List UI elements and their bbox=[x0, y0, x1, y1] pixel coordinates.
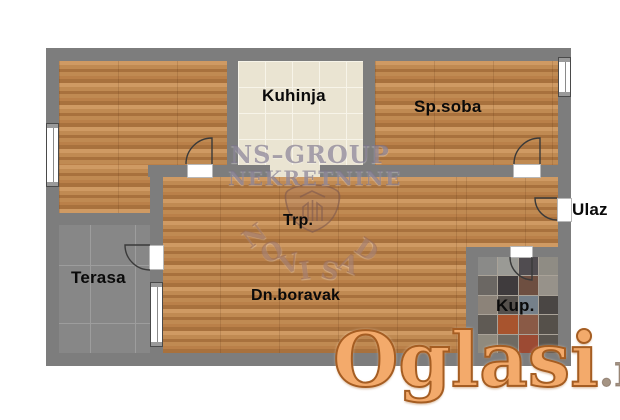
left-room-floor bbox=[59, 61, 227, 165]
bedroom-window bbox=[558, 57, 571, 97]
bathroom-door-threshold bbox=[510, 246, 533, 258]
window-cap bbox=[151, 342, 162, 346]
window-cap bbox=[559, 92, 570, 96]
window-cap bbox=[151, 283, 162, 287]
agency-watermark-name: NS–GROUP bbox=[228, 143, 392, 167]
terrace-right-wall-segment bbox=[150, 165, 163, 245]
bathroom-tile bbox=[478, 257, 497, 275]
window-cap bbox=[47, 182, 58, 186]
window-glass-line bbox=[53, 125, 54, 185]
bathroom-tile bbox=[478, 276, 497, 294]
terrace-right-wall-segment bbox=[150, 347, 163, 366]
terrace-window bbox=[150, 282, 163, 347]
dining-label: Trp. bbox=[283, 212, 313, 230]
terrace-label: Terasa bbox=[71, 268, 126, 288]
bathroom-top-wall-segment bbox=[533, 247, 558, 257]
bathroom-top-wall-segment bbox=[478, 247, 510, 257]
outer-wall-left bbox=[46, 48, 59, 366]
terrace-door-threshold bbox=[149, 245, 164, 270]
window-cap bbox=[559, 58, 570, 62]
portal-watermark: Oglasi.rs bbox=[333, 323, 620, 398]
portal-watermark-name: Oglasi bbox=[333, 316, 599, 404]
bathroom-tile bbox=[539, 257, 558, 275]
agency-watermark: NS–GROUP NEKRETNINE bbox=[228, 143, 392, 188]
bedroom-label: Sp.soba bbox=[414, 97, 482, 117]
terrace-top-wall bbox=[46, 213, 150, 225]
terrace-floor bbox=[59, 225, 150, 353]
entrance-door-threshold bbox=[557, 198, 572, 222]
hallway-floor bbox=[466, 177, 558, 247]
window-cap bbox=[47, 124, 58, 128]
portal-watermark-tld: .rs bbox=[599, 344, 620, 397]
bathroom-tile bbox=[498, 257, 517, 275]
left-room-door-threshold bbox=[187, 164, 213, 178]
entrance-label: Ulaz bbox=[572, 200, 608, 220]
window-glass-line bbox=[157, 284, 158, 345]
bathroom-label: Kup. bbox=[496, 296, 535, 316]
agency-watermark-type: NEKRETNINE bbox=[228, 168, 392, 188]
bathroom-tile bbox=[519, 257, 538, 275]
bedroom-bottom-wall-segment bbox=[541, 165, 558, 177]
window-glass-line bbox=[565, 59, 566, 95]
bathroom-tile bbox=[539, 296, 558, 314]
outer-wall-top bbox=[46, 48, 571, 61]
bathroom-tile bbox=[478, 296, 497, 314]
left-room-window bbox=[46, 123, 59, 187]
bathroom-tile bbox=[498, 276, 517, 294]
living-room-label: Dn.boravak bbox=[251, 287, 340, 305]
terrace-right-wall-segment bbox=[150, 270, 163, 282]
floor-plan: Kuhinja Sp.soba Ulaz Trp. Terasa Dn.bora… bbox=[0, 0, 620, 420]
bathroom-tile bbox=[519, 276, 538, 294]
bathroom-tile bbox=[539, 276, 558, 294]
left-room-floor-extension bbox=[59, 165, 150, 213]
kitchen-label: Kuhinja bbox=[262, 86, 326, 106]
bedroom-door-threshold bbox=[513, 164, 541, 178]
